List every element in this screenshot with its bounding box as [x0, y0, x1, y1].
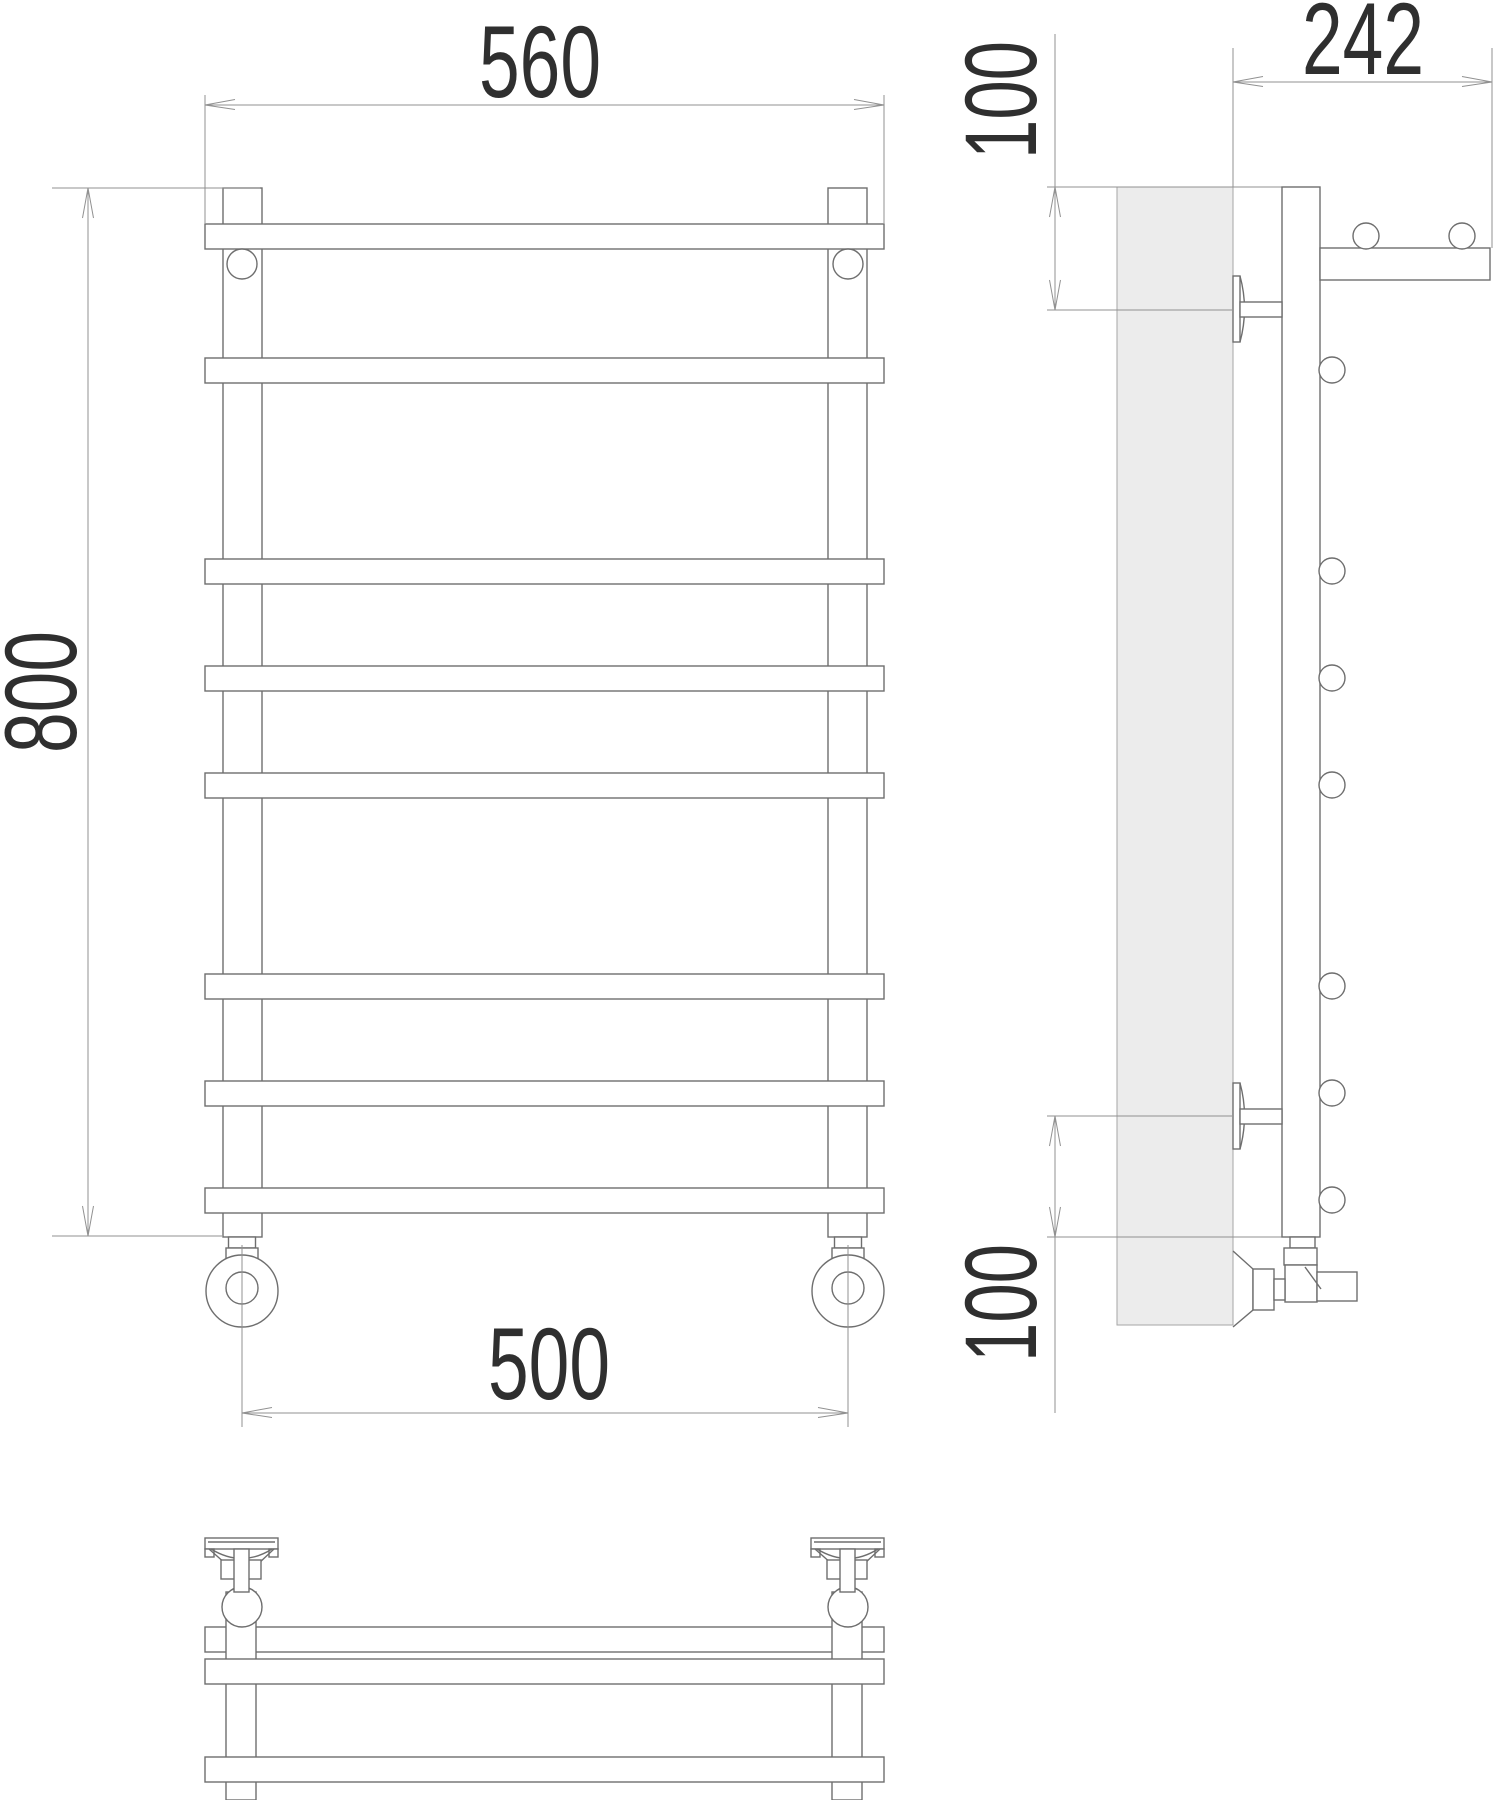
wall-pipe-fitting [1253, 1269, 1274, 1310]
shelf-rail-end-2 [1449, 223, 1475, 249]
foot-valve-left [206, 1237, 278, 1427]
plan-view [205, 1538, 884, 1800]
rung-end-4 [1319, 665, 1345, 691]
rung-end-6 [1319, 973, 1345, 999]
rung-end-3 [1319, 558, 1345, 584]
rung-end-2 [1319, 357, 1345, 383]
front-view [205, 188, 884, 1427]
technical-drawing: 560 800 500 [0, 0, 1494, 1800]
plan-valve-handle-left [205, 1538, 278, 1592]
valve-body [1285, 1265, 1317, 1302]
rung-end-5 [1319, 772, 1345, 798]
side-valve-assembly [1233, 1237, 1357, 1327]
dimension-front-height: 800 [0, 188, 260, 1236]
rung-2 [205, 358, 884, 383]
shelf-socket-right [833, 249, 863, 279]
handle-bar [205, 1538, 278, 1549]
handle-bar [811, 1538, 884, 1549]
dimension-side-top-offset: 100 [944, 34, 1061, 310]
dimension-label-500: 500 [488, 1307, 610, 1421]
handle-stem [234, 1549, 249, 1592]
dimension-front-bottom-width: 500 [242, 1307, 848, 1421]
wall-bracket-bottom [1233, 1083, 1282, 1149]
foot-valve-right [812, 1237, 884, 1427]
valve-outlet-pipe [1317, 1272, 1357, 1301]
side-view [1047, 187, 1490, 1327]
towel-rail-drawing: 560 800 500 [0, 0, 1494, 1800]
bracket-flange [1233, 276, 1240, 342]
dimension-label-242: 242 [1302, 0, 1424, 96]
shelf-arm [1320, 248, 1490, 280]
rung-3 [205, 559, 884, 584]
valve-nut [1284, 1248, 1317, 1265]
bracket-arm [1240, 302, 1282, 317]
rung-8 [205, 1188, 884, 1213]
plan-valve-handle-right [811, 1538, 884, 1592]
rung-4 [205, 666, 884, 691]
plan-rail-front [205, 1757, 884, 1782]
shelf-socket-left [227, 249, 257, 279]
valve-neck [1290, 1237, 1315, 1248]
wall-pipe-flare [1233, 1251, 1253, 1327]
dimension-label-800: 800 [0, 631, 98, 753]
handle-stem [840, 1549, 855, 1592]
bracket-arm [1240, 1109, 1282, 1124]
plan-valve-ball-right [828, 1587, 868, 1627]
dimension-front-top-width: 560 [205, 5, 884, 223]
rung-1 [205, 224, 884, 249]
wall-section [1117, 187, 1233, 1325]
side-plate [1282, 187, 1320, 1237]
dimension-label-100-top: 100 [944, 41, 1058, 159]
rung-7 [205, 1081, 884, 1106]
shelf-rail-end-1 [1353, 223, 1379, 249]
bracket-flange [1233, 1083, 1240, 1149]
wall-bracket-top [1233, 276, 1282, 342]
rung-end-7 [1319, 1080, 1345, 1106]
rung-end-8 [1319, 1187, 1345, 1213]
riser-right [828, 188, 867, 1237]
dimension-side-bottom-offset: 100 [944, 1116, 1061, 1413]
riser-left [223, 188, 262, 1237]
rung-6 [205, 974, 884, 999]
plan-rail-middle [205, 1659, 884, 1684]
dimension-side-depth: 242 [1233, 0, 1492, 248]
dimension-label-100-bottom: 100 [944, 1244, 1058, 1362]
plan-rail-rear [205, 1627, 884, 1652]
dimension-label-560: 560 [479, 5, 601, 119]
pipe-connector [1274, 1279, 1285, 1300]
plan-valve-ball-left [222, 1587, 262, 1627]
rung-5 [205, 773, 884, 798]
